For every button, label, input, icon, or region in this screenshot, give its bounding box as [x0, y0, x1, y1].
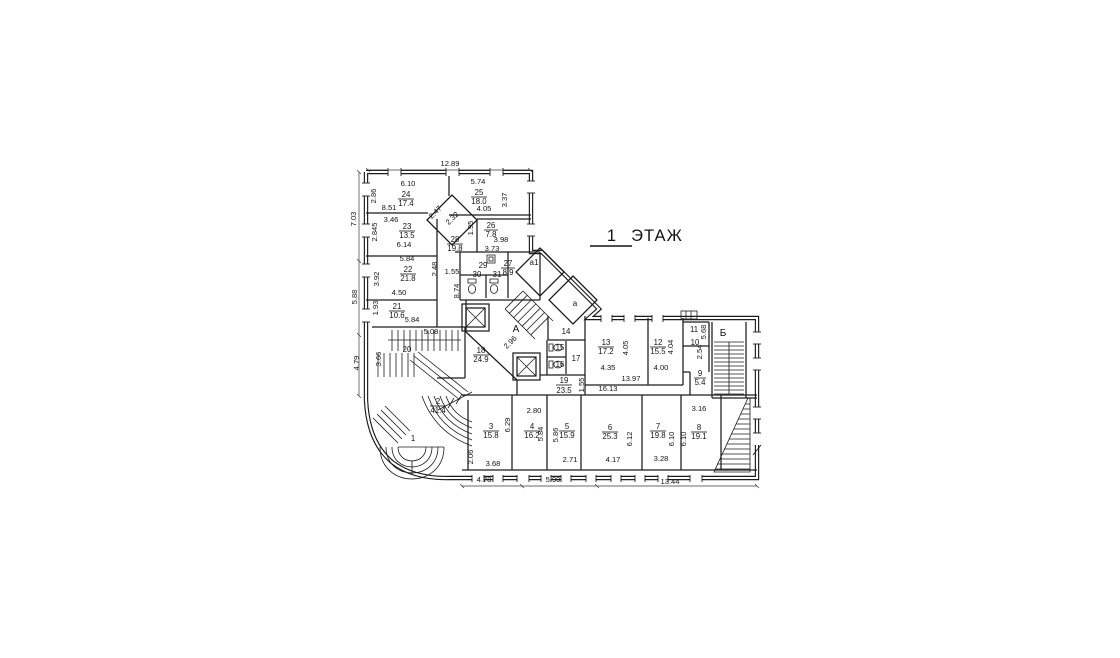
room-21-area: 10.6 [389, 311, 404, 320]
dim-label: 2.48 [430, 262, 439, 277]
dim-label: 4.05 [621, 341, 630, 356]
dim-label: 4.79 [352, 356, 361, 371]
floor-plan-page: 1 ЭТАЖ 1 2 41.4 3 15.8 4 16.2 5 15.9 6 2… [0, 0, 1120, 658]
dim-label: 5.08 [424, 327, 439, 336]
room-28-number: 28 [451, 235, 460, 244]
dim-label: 2.86 [369, 189, 378, 204]
dim-label: 3.46 [384, 215, 399, 224]
room-29-number: 29 [479, 261, 488, 270]
dim-label: 3.68 [486, 459, 501, 468]
room-9-number: 9 [698, 369, 702, 378]
dim-label: 6.10 [679, 432, 688, 447]
dim-label: 7.03 [349, 212, 358, 227]
room-9-area: 5.4 [695, 378, 707, 387]
room-25-number: 25 [475, 188, 484, 197]
dim-label: 1.55 [577, 378, 586, 393]
room-27-area: 8.9 [503, 268, 514, 277]
room-5-area: 15.9 [559, 431, 574, 440]
room-21-number: 21 [393, 302, 402, 311]
room-8-area: 19.1 [691, 432, 706, 441]
dim-label: 1.93 [371, 301, 380, 316]
letter-bay-a: а [573, 299, 578, 308]
dim-label: 12.89 [440, 159, 459, 168]
dim-label: 2.54 [695, 345, 704, 360]
title-block: 1 ЭТАЖ [590, 227, 683, 246]
dim-label: 5.84 [405, 315, 420, 324]
dim-label: 3.66 [374, 352, 383, 367]
room-8-number: 8 [697, 423, 701, 432]
stair-b [714, 342, 744, 394]
room-6-number: 6 [608, 423, 612, 432]
room-17-number: 17 [572, 354, 581, 363]
room-4-number: 4 [530, 422, 535, 431]
room-11-number: 11 [690, 325, 698, 334]
dim-label: 2.71 [563, 455, 578, 464]
room-15-number: 15 [556, 343, 565, 352]
room-18-number: 18 [477, 346, 486, 355]
letter-stair-a: А [513, 324, 520, 335]
dim-label: 4.35 [601, 363, 616, 372]
dim-label: 2.06 [466, 450, 475, 465]
dim-label: 8.74 [452, 284, 461, 299]
room-18-area: 24.9 [473, 355, 488, 364]
room-19-number: 19 [560, 376, 569, 385]
room-22-number: 22 [404, 265, 413, 274]
room-3-number: 3 [489, 422, 493, 431]
dim-label: 3.28 [654, 454, 669, 463]
room-23-number: 23 [403, 222, 412, 231]
dim-label: 1.55 [445, 267, 460, 276]
dim-label: 2.80 [527, 406, 542, 415]
room-12-number: 12 [654, 338, 663, 347]
dim-label: 5.74 [471, 177, 486, 186]
dim-label: 4.50 [392, 288, 407, 297]
dim-label: 2.96 [502, 334, 519, 351]
room-2-number: 2 [436, 397, 440, 406]
room-14-number: 14 [562, 327, 571, 336]
dim-label: 3.37 [500, 193, 509, 208]
room-27-number: 27 [504, 259, 513, 268]
dim-label: 3.16 [692, 404, 707, 413]
dim-label: 5.68 [699, 325, 708, 340]
entry-fan-steps [410, 352, 472, 446]
dim-label: 6.29 [503, 418, 512, 433]
dim-label: 4.04 [666, 340, 675, 355]
elevator-shafts [462, 304, 540, 380]
room-12-area: 15.5 [650, 347, 666, 356]
dim-label: 6.10 [401, 179, 416, 188]
room-13-number: 13 [602, 338, 611, 347]
title-floor-number: 1 [607, 227, 617, 245]
dim-label: 1.95 [466, 221, 475, 236]
room-22-area: 21.8 [400, 274, 415, 283]
dim-label: 2.32 [444, 210, 461, 227]
entry-porch-round [373, 406, 444, 479]
dim-label: 13.97 [621, 374, 640, 383]
dim-label: 4.78 [477, 475, 492, 484]
dim-label: 3.98 [494, 235, 509, 244]
room-13-area: 17.2 [598, 347, 613, 356]
dim-label: 16.13 [598, 384, 617, 393]
dim-label: 6.10 [667, 432, 676, 447]
room-24-number: 24 [402, 190, 411, 199]
room-19-area: 23.5 [556, 386, 572, 395]
dim-label: 3.73 [485, 244, 500, 253]
dim-label: 4.05 [477, 204, 492, 213]
room-24-area: 17.4 [398, 199, 414, 208]
stair-triangle-exterior [714, 398, 750, 472]
dim-label: 4.00 [654, 363, 669, 372]
dim-label: 4.17 [606, 455, 621, 464]
letter-stair-b: Б [720, 328, 727, 339]
room-7-number: 7 [656, 422, 660, 431]
dim-label: 5.90 [546, 475, 561, 484]
room-23-area: 13.5 [399, 231, 415, 240]
dim-label: 3.92 [372, 272, 381, 287]
dim-label: 5.88 [350, 290, 359, 305]
dim-label: 6.12 [625, 432, 634, 447]
dim-label: 5.86 [551, 428, 560, 443]
room-2-area: 41.4 [430, 406, 446, 415]
room-28-area: 19.8 [447, 244, 462, 253]
floor-plan-drawing: 1 ЭТАЖ 1 2 41.4 3 15.8 4 16.2 5 15.9 6 2… [0, 0, 1120, 658]
room-20-number: 20 [403, 345, 412, 354]
room-16-number: 16 [556, 360, 565, 369]
room-3-area: 15.8 [483, 431, 498, 440]
room-6-area: 25.3 [602, 432, 617, 441]
room-1-number: 1 [411, 434, 415, 443]
dim-label: 8.51 [382, 203, 397, 212]
room-31-number: 31 [493, 270, 502, 279]
dim-label: 6.14 [397, 240, 412, 249]
title-floor-word: ЭТАЖ [631, 227, 683, 245]
room-5-number: 5 [565, 422, 570, 431]
dim-label: 5.84 [536, 427, 545, 442]
dim-label: 13.44 [660, 477, 679, 486]
room-26-number: 26 [487, 221, 496, 230]
letter-bay-a1: а1 [530, 258, 539, 267]
dim-label: 2.845 [370, 222, 379, 241]
room-7-area: 19.8 [650, 431, 665, 440]
dim-label: 5.84 [400, 254, 415, 263]
room-30-number: 30 [473, 270, 482, 279]
